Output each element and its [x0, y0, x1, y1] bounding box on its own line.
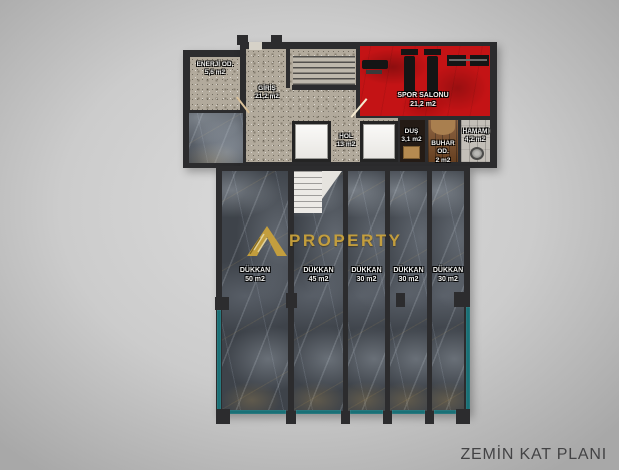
room-area: 50 m2 — [222, 275, 288, 284]
wall-foot-d3 — [383, 411, 392, 424]
wall-giris-stairs — [286, 42, 290, 88]
room-upper-left-marble — [189, 113, 243, 163]
room-name: BUHAR OD. — [426, 140, 460, 157]
wall-foot-right — [456, 409, 470, 424]
room-label-enerji: ENERJİ OD. 5,6 m2 — [186, 61, 244, 78]
hamam-basin — [470, 147, 484, 160]
shop-4-floor — [390, 171, 427, 412]
storefront-glass-shop5 — [434, 410, 456, 414]
dus-mat — [403, 146, 420, 159]
room-area: 30 m2 — [390, 275, 427, 284]
watermark-logo-icon — [247, 226, 287, 256]
room-area: 5,6 m2 — [186, 69, 244, 77]
room-label-hol: HOL 13 m2 — [331, 133, 361, 150]
elevator-shaft-1 — [292, 121, 331, 162]
room-area: 4,2 m2 — [458, 136, 492, 144]
entrance-column-left — [237, 35, 248, 45]
room-label-dukkan-5: DÜKKAN 30 m2 — [432, 266, 464, 284]
entrance-door-gap — [249, 42, 262, 50]
stairs-landing-wall — [292, 85, 356, 90]
room-area: 3,1 m2 — [398, 136, 425, 144]
stairs — [293, 56, 355, 86]
storefront-glass-shop1 — [222, 410, 286, 414]
room-name: DÜKKAN — [348, 266, 385, 275]
watermark-text: PROPERTY — [289, 231, 403, 251]
room-label-dukkan-1: DÜKKAN 50 m2 — [222, 266, 288, 284]
storefront-glass-shop2 — [296, 410, 341, 414]
room-area: 21,2 m2 — [383, 100, 463, 109]
storefront-glass-left — [217, 310, 221, 412]
gym-bench-icon — [362, 60, 388, 69]
room-area: 30 m2 — [432, 275, 464, 284]
room-label-dukkan-4: DÜKKAN 30 m2 — [390, 266, 427, 284]
elevator-shaft-2 — [360, 121, 398, 162]
room-label-hamam: HAMAM 4,2 m2 — [458, 128, 492, 145]
treadmill-1-bar-icon — [401, 49, 418, 55]
treadmill-1-mat-icon — [404, 56, 415, 96]
gym-bench-rack-icon — [366, 70, 382, 74]
room-area: 2 m2 — [426, 157, 460, 165]
shop-3-floor — [348, 171, 385, 412]
room-label-dukkan-3: DÜKKAN 30 m2 — [348, 266, 385, 284]
shop-1-floor — [222, 171, 288, 412]
floor-plan-image: ENERJİ OD. 5,6 m2 GİRİŞ 21,2 m2 SPOR SAL… — [0, 0, 619, 470]
storefront-glass-shop4 — [392, 410, 425, 414]
room-label-giris: GİRİŞ 21,2 m2 — [240, 85, 294, 102]
entrance-column-right — [271, 35, 282, 45]
room-area: 21,2 m2 — [240, 93, 294, 101]
wall-foot-left — [216, 409, 230, 424]
wall-stub-left — [215, 297, 229, 310]
lower-stairs — [294, 171, 322, 213]
room-name: DÜKKAN — [294, 266, 343, 275]
room-label-buhar: BUHAR OD. 2 m2 — [426, 140, 460, 165]
room-label-spor-salonu: SPOR SALONU 21,2 m2 — [383, 91, 463, 109]
storefront-glass-shop3 — [350, 410, 383, 414]
wall-stub-divider1 — [286, 293, 297, 308]
room-area: 45 m2 — [294, 275, 343, 284]
weight-bar-icon — [449, 59, 487, 61]
room-name: DÜKKAN — [222, 266, 288, 275]
wall-stub-right — [454, 292, 469, 307]
treadmill-2-bar-icon — [424, 49, 441, 55]
room-area: 13 m2 — [331, 141, 361, 149]
wall-foot-d1 — [286, 411, 296, 424]
wall-foot-d4 — [425, 411, 434, 424]
room-area: 30 m2 — [348, 275, 385, 284]
page-title: ZEMİN KAT PLANI — [460, 446, 607, 464]
room-name: DÜKKAN — [390, 266, 427, 275]
treadmill-2-mat-icon — [427, 56, 438, 96]
storefront-glass-right — [466, 307, 470, 412]
room-label-dukkan-2: DÜKKAN 45 m2 — [294, 266, 343, 284]
room-label-dus: DUŞ 3,1 m2 — [398, 128, 425, 145]
wall-stub-shop4 — [396, 293, 405, 307]
wall-foot-d2 — [341, 411, 350, 424]
room-name: SPOR SALONU — [383, 91, 463, 100]
buhar-door-swing — [431, 120, 455, 135]
room-name: DÜKKAN — [432, 266, 464, 275]
